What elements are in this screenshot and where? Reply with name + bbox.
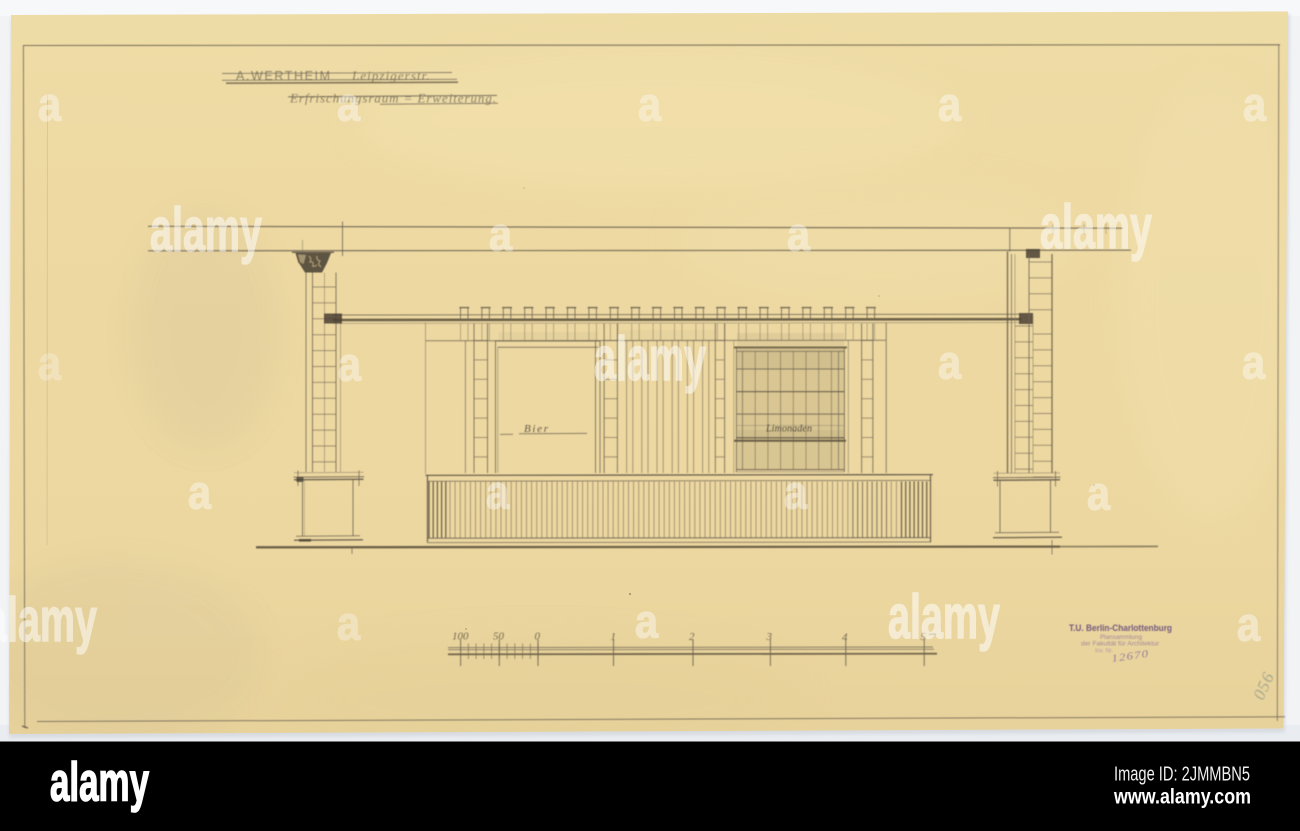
svg-text:a: a — [635, 595, 659, 648]
svg-text:a: a — [1237, 598, 1261, 651]
svg-text:www.alamy.com: www.alamy.com — [1113, 786, 1251, 809]
svg-text:alamy: alamy — [594, 325, 706, 394]
svg-text:a: a — [938, 336, 962, 389]
svg-text:a: a — [337, 78, 361, 131]
svg-text:a: a — [638, 78, 662, 131]
svg-text:a: a — [338, 338, 362, 391]
svg-text:Leipzigerstr.: Leipzigerstr. — [351, 68, 430, 83]
svg-text:a: a — [38, 337, 62, 390]
svg-text:T.U. Berlin-Charlottenburg: T.U. Berlin-Charlottenburg — [1069, 623, 1172, 634]
svg-text:a: a — [1243, 78, 1267, 131]
svg-text:a: a — [489, 208, 513, 261]
svg-text:Limonaden: Limonaden — [765, 424, 812, 435]
svg-text:alamy: alamy — [50, 751, 149, 813]
svg-text:100: 100 — [452, 631, 469, 643]
svg-text:A.WERTHEIM: A.WERTHEIM — [236, 69, 332, 83]
svg-text:alamy: alamy — [0, 586, 97, 655]
svg-text:a: a — [188, 466, 212, 519]
svg-text:der Fakultät für Architektur: der Fakultät für Architektur — [1081, 641, 1160, 648]
svg-text:a: a — [1242, 336, 1266, 389]
svg-text:Image ID: 2JMMBN5: Image ID: 2JMMBN5 — [1114, 764, 1250, 786]
svg-text:a: a — [787, 208, 811, 261]
svg-text:a: a — [938, 78, 962, 131]
svg-text:1: 1 — [611, 631, 617, 643]
svg-text:a: a — [1087, 467, 1111, 520]
svg-text:alamy: alamy — [1040, 193, 1152, 262]
svg-text:Erfrischungsraum = Erweiterung: Erfrischungsraum = Erweiterung. — [289, 91, 496, 106]
svg-text:a: a — [38, 78, 62, 131]
svg-text:a: a — [486, 466, 510, 519]
svg-text:0: 0 — [535, 631, 541, 643]
svg-text:alamy: alamy — [888, 583, 1000, 652]
svg-text:50: 50 — [493, 631, 505, 643]
svg-text:4: 4 — [842, 632, 848, 644]
svg-text:2: 2 — [689, 631, 695, 643]
svg-text:alamy: alamy — [150, 196, 262, 265]
svg-text:3: 3 — [766, 631, 773, 643]
svg-text:a: a — [784, 466, 808, 519]
svg-text:a: a — [337, 597, 361, 650]
